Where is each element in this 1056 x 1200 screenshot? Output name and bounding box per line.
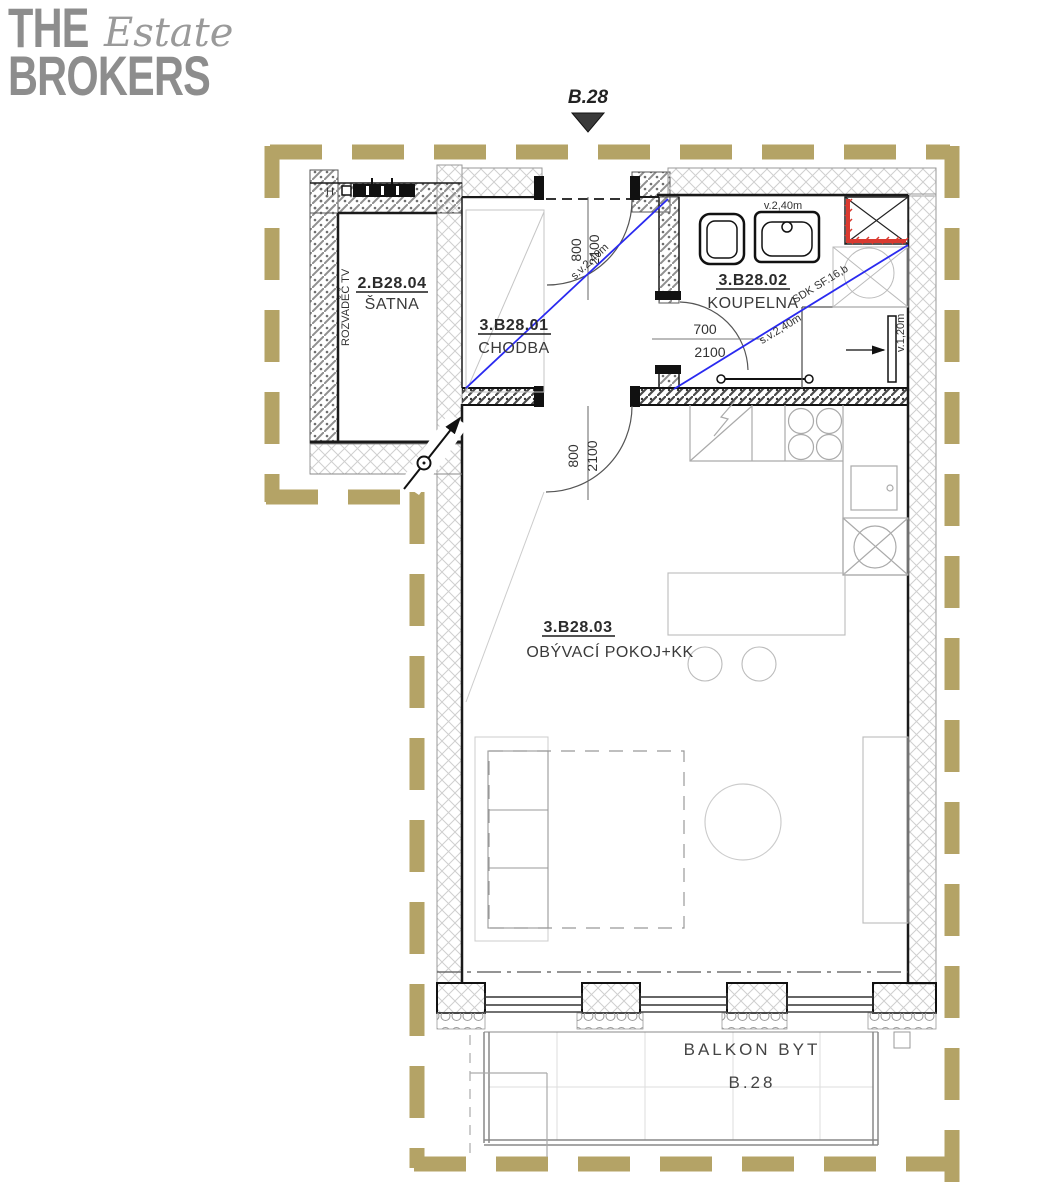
ceiling-height-koupelna: v.2,40m [764,200,802,212]
unit-marker: B.28 [568,87,609,132]
entry-door: 800 2100 [534,176,640,300]
wall-lines [310,168,936,1013]
living-room-door: 800 2100 [546,406,632,500]
balcony-drain [894,1032,910,1048]
room-chodba: s.v.2,40m 3.B28.01 CHODBA [466,199,668,392]
coffee-table-icon [705,784,781,860]
unit-marker-label: B.28 [568,87,609,108]
bath-door-height: 2100 [694,344,725,360]
ceiling-diagonal-chodba [466,199,668,388]
kitchen-counter [690,401,908,575]
insulation-strips [437,1013,936,1029]
niche-height-label: v.1,20m [895,314,907,352]
entry-door-width: 800 [568,238,584,262]
room-code-chodba: 3.B28.01 [480,317,549,334]
room-code-obyvak: 3.B28.03 [544,619,613,636]
floorplan-page: THE BROKERS Estate [0,0,1056,1200]
brand-logo: THE BROKERS Estate [8,4,281,100]
logo-estate: Estate [104,10,233,56]
rozvadec-tv-label: ROZVADĚČ TV [339,268,352,346]
window-wall [437,972,936,1029]
sofa-icon [475,737,548,941]
room-koupelna: v.2,40m 3.B28.02 KOUPELNA 700 2100 v.1,2… [652,197,908,389]
living-door-height: 2100 [584,440,600,471]
room-name-chodba: CHODBA [478,340,549,357]
room-name-koupelna: KOUPELNA [707,295,798,312]
ceiling-height-shower: s.v.2,40m [757,312,803,347]
room-code-koupelna: 3.B28.02 [719,272,788,289]
neighbor-balcony-lines [470,1035,547,1157]
floorplan-drawing: B.28 [0,0,1056,1200]
installation-shaft [845,197,908,244]
washbasin-icon [755,212,819,262]
balcony-unit-label: B.28 [729,1073,776,1092]
room-code-satna: 2.B28.04 [358,275,427,292]
partition-wall [462,386,908,407]
wardrobe-icon [863,737,908,923]
balcony: BALKON BYT B.28 [470,1032,910,1157]
room-name-obyvak: OBÝVACÍ POKOJ+KK [526,642,693,661]
balcony-label: BALKON BYT [684,1040,821,1059]
rug-outline [489,751,684,928]
room-name-satna: ŠATNA [365,294,420,313]
shower-icon [833,247,908,307]
bath-door-width: 700 [693,321,717,337]
living-door-width: 800 [565,444,581,468]
room-satna: ROZVADĚČ TV 2.B28.04 ŠATNA [339,268,428,346]
windows [485,993,873,1009]
unit-marker-triangle-icon [572,113,604,132]
logo-brokers: BROKERS [8,52,210,100]
room-obyvak: 3.B28.03 OBÝVACÍ POKOJ+KK [466,401,908,941]
h-label: H [326,186,334,198]
dining-table [668,573,845,681]
